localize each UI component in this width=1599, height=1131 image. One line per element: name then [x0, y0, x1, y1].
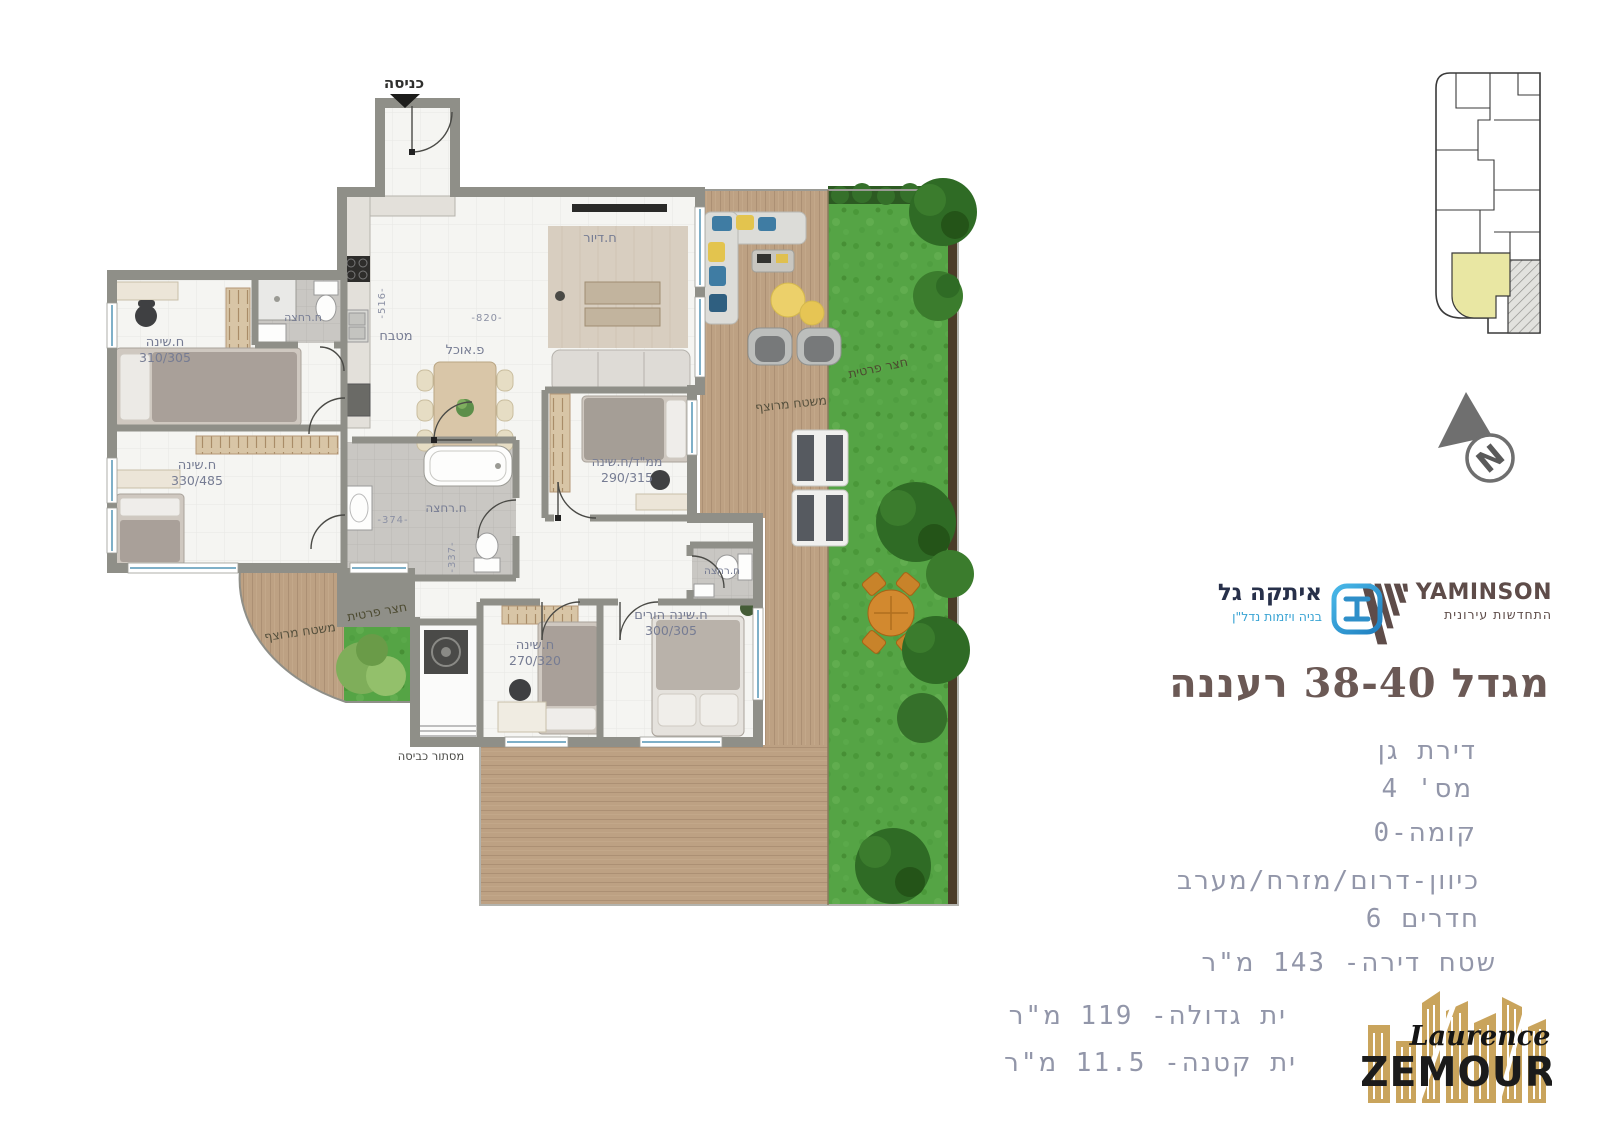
zemour-last-name: ZEMOUR: [1362, 1049, 1552, 1096]
dim-516: -516-: [377, 287, 388, 318]
zemour-first-name: Laurence: [1409, 1021, 1551, 1052]
page: כניסה ח.שינה 310/305 ח.רחצה ח.שינה 330/4…: [0, 0, 1599, 1131]
label-parents: ח.שינה הורים: [634, 608, 707, 623]
label-bath1: ח.רחצה: [284, 311, 322, 324]
key-plan: [1436, 73, 1540, 333]
dim-820: -820-: [471, 313, 502, 324]
itaka-name: איתקה גל: [1218, 582, 1322, 605]
itaka-tagline: בניה ויזמות נדל"ן: [1218, 609, 1322, 624]
yaminson-tagline: התחדשות עירונית: [1416, 607, 1552, 622]
apartment: כניסה: [107, 74, 763, 747]
detail-direction: כיוון-דרום/מזרח/מערב: [1177, 866, 1480, 896]
yaminson-logo: YAMINSON התחדשות עירונית: [1360, 582, 1552, 646]
label-bedroom2: ח.שינה: [178, 458, 216, 473]
zemour-logo: Laurence ZEMOUR: [1362, 983, 1552, 1112]
detail-area: שטח דירה- 143 מ"ר: [1201, 948, 1497, 978]
label-living: ח.דיור: [583, 231, 617, 246]
label-laundry: מסתור כביסה: [398, 749, 464, 763]
label-bedroom3: ח.שינה: [516, 638, 554, 653]
detail-apartment-type: דירת גן: [1378, 736, 1477, 766]
lower-deck: [480, 745, 828, 905]
label-mamad: ממ"ד/ח.שינה: [592, 454, 663, 469]
detail-large-yard: ית גדולה- 119 מ"ר: [1009, 1001, 1287, 1031]
size-bedroom2: 330/485: [171, 473, 223, 488]
project-title: מגדל 38-40 רעננה: [1169, 660, 1550, 707]
label-kitchen: מטבח: [379, 329, 412, 344]
north-arrow: N: [1438, 392, 1513, 481]
size-bedroom1: 310/305: [139, 350, 191, 365]
entrance-label: כניסה: [384, 74, 424, 92]
yaminson-name: YAMINSON: [1416, 582, 1552, 604]
size-parents: 300/305: [645, 623, 697, 638]
dim-337: -337-: [447, 541, 458, 572]
detail-rooms: חדרים 6: [1366, 904, 1480, 934]
label-bedroom1: ח.שינה: [146, 335, 184, 350]
size-bedroom3: 270/320: [509, 653, 561, 668]
detail-small-yard: ית קטנה- 11.5 מ"ר: [1004, 1048, 1297, 1078]
pouf: [800, 301, 824, 325]
itaka-icon: [1330, 582, 1384, 636]
detail-floor: קומה-0: [1374, 818, 1478, 848]
itaka-logo: איתקה גל בניה ויזמות נדל"ן: [1218, 582, 1384, 636]
label-bath3: ח.רחצה: [704, 565, 740, 577]
size-mamad: 290/315: [601, 470, 653, 485]
label-dining: פ.אוכל: [446, 343, 485, 358]
zemour-skyline: Laurence ZEMOUR: [1362, 983, 1552, 1108]
dim-374: -374-: [377, 515, 408, 526]
detail-number: מס' 4: [1382, 774, 1474, 804]
label-bath2: ח.רחצה: [425, 501, 466, 515]
